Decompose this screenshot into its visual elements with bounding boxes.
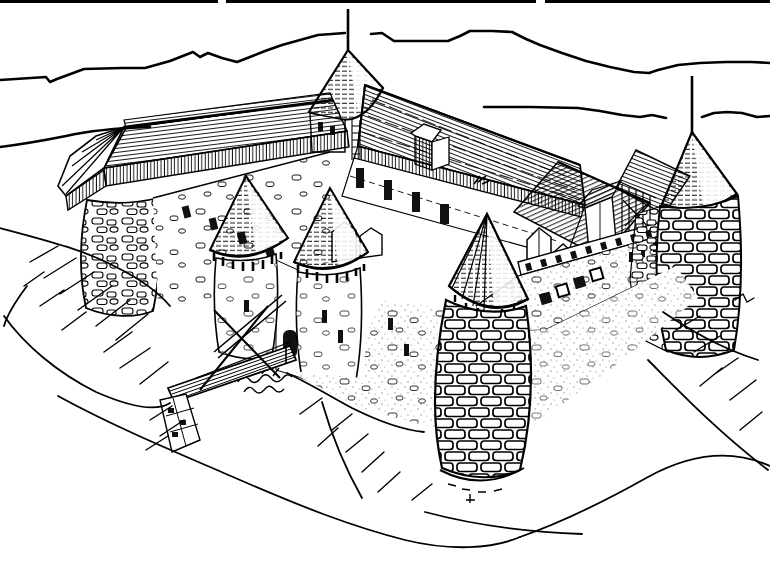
castle-line-drawing [0, 0, 770, 570]
castle-line-drawing-svg [0, 0, 770, 570]
